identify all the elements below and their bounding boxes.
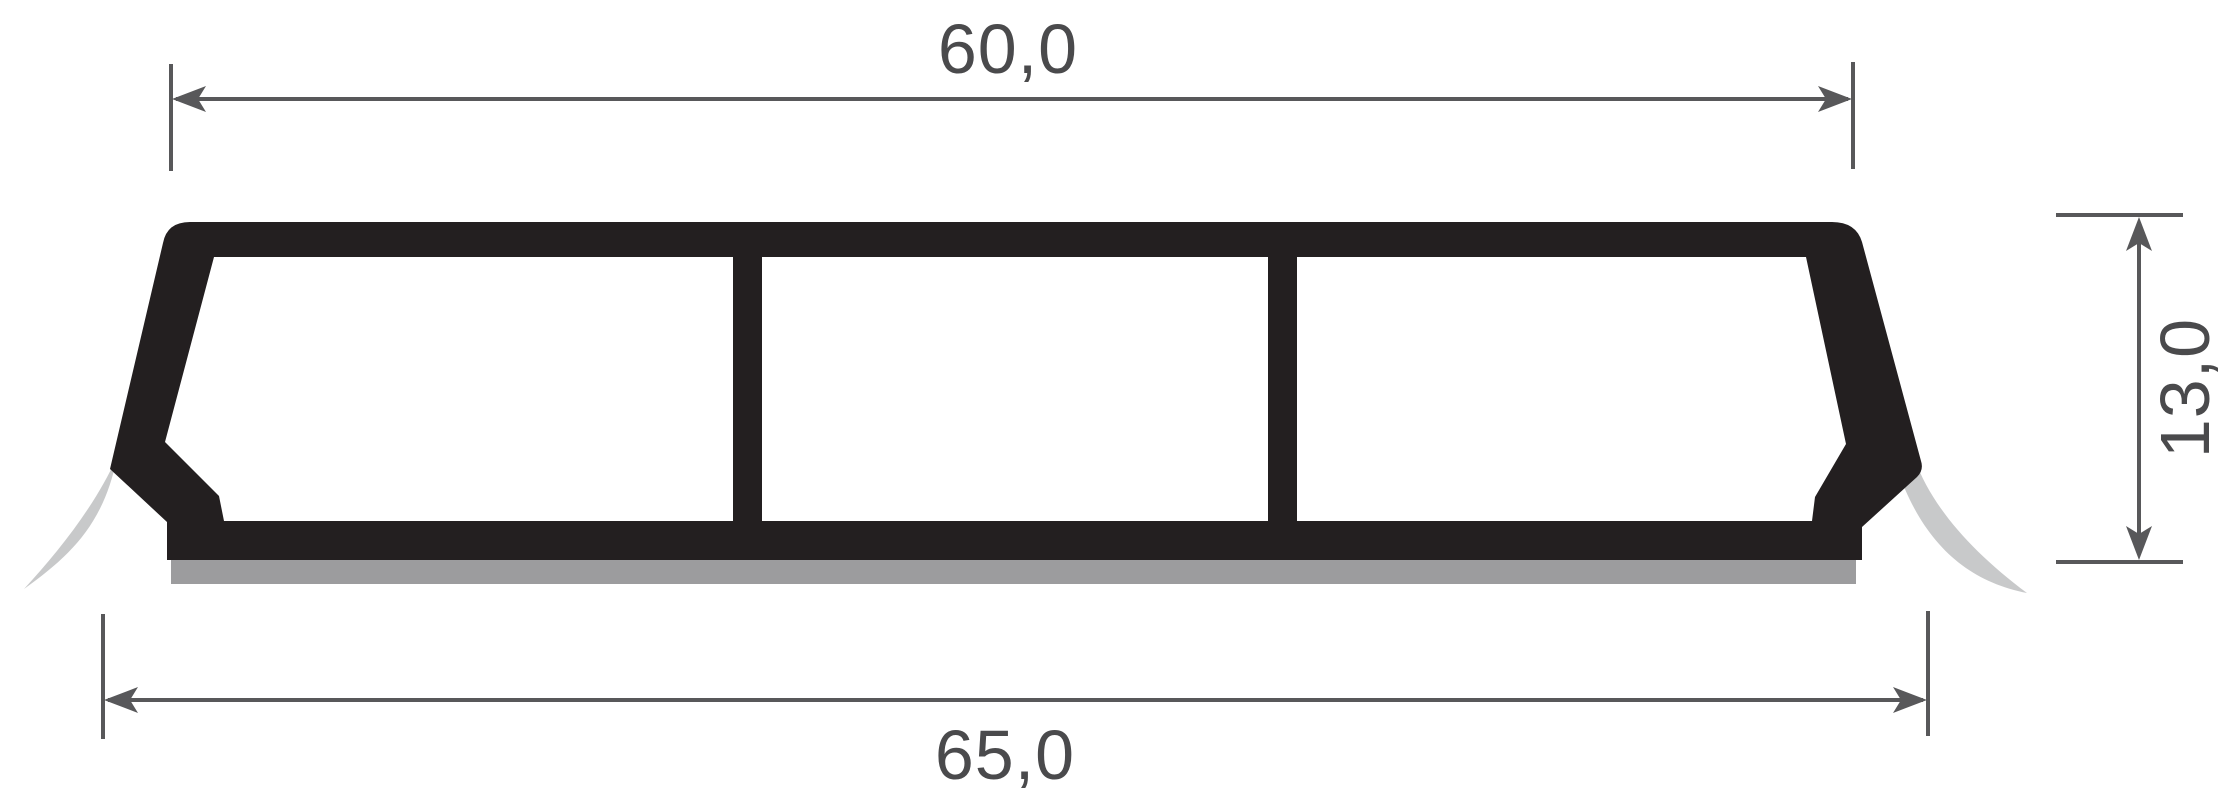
threshold-profile-drawing: 60,0 65,0 13,0: [0, 0, 2229, 800]
adhesive-tape-strip: [171, 560, 1856, 584]
drawing-canvas: 60,0 65,0 13,0: [0, 0, 2229, 800]
dimension-label-height: 13,0: [2146, 318, 2224, 458]
dimension-label-top-width: 60,0: [938, 10, 1078, 88]
release-liner-flap-left: [24, 457, 117, 589]
dimension-label-overall-width: 65,0: [935, 716, 1075, 794]
profile-body: [110, 222, 1922, 560]
release-liner-flap-right: [1902, 460, 2027, 593]
